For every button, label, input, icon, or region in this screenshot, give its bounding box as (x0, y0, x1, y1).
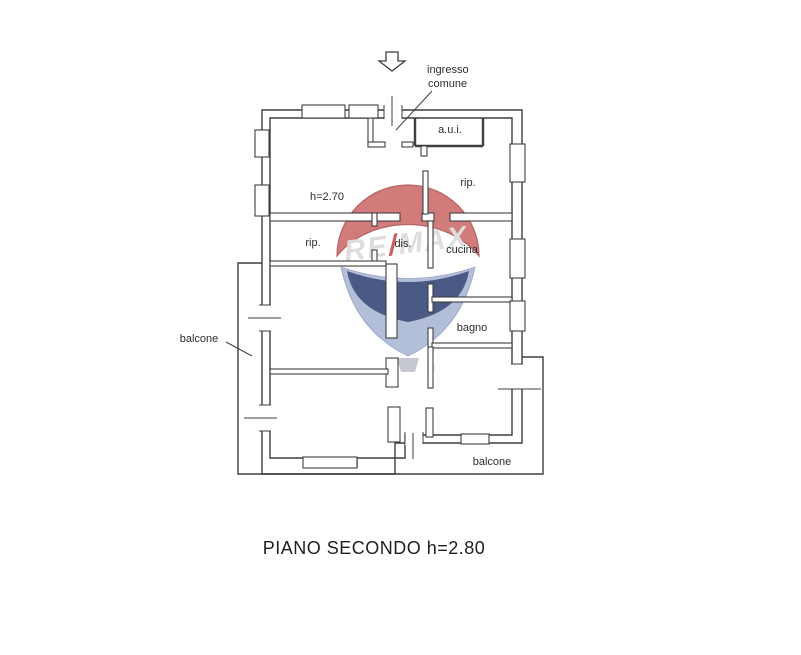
balcony-door-opening-bottom (405, 431, 423, 445)
balcone-leader-line (226, 342, 252, 356)
interior-wall (270, 261, 386, 266)
interior-wall-thick (386, 264, 397, 338)
floorplan-drawing: ® RE/MAX (0, 0, 801, 655)
interior-wall (388, 407, 400, 442)
window-marker (255, 130, 269, 157)
interior-wall (432, 343, 512, 348)
interior-walls (270, 118, 512, 442)
label-height-note: h=2.70 (310, 191, 344, 203)
window-marker (510, 144, 525, 182)
interior-wall (377, 213, 400, 221)
label-bagno: bagno (457, 322, 488, 334)
label-dis: dis. (394, 238, 411, 250)
north-arrow-icon (379, 52, 405, 71)
window-marker (255, 185, 269, 216)
plan-title: PIANO SECONDO h=2.80 (263, 538, 486, 558)
label-rip-top: rip. (460, 177, 475, 189)
interior-wall (450, 213, 512, 221)
window-marker (461, 434, 489, 444)
interior-wall (270, 369, 388, 374)
interior-wall (421, 146, 427, 156)
interior-wall (368, 142, 385, 147)
window-marker (303, 457, 357, 468)
window-marker (510, 239, 525, 278)
interior-wall (428, 221, 433, 268)
interior-wall (432, 297, 512, 302)
interior-wall (402, 142, 413, 147)
label-balcone-left: balcone (180, 333, 219, 345)
interior-wall (426, 408, 433, 437)
window-marker (349, 105, 378, 118)
label-rip-mid: rip. (305, 237, 320, 249)
floorplan-page: ® RE/MAX (0, 0, 801, 655)
balloon-basket-icon (397, 358, 419, 372)
interior-wall (423, 171, 428, 214)
entrance-opening (384, 104, 402, 120)
label-balcone-bottom: balcone (473, 456, 512, 468)
label-aui: a.u.i. (438, 124, 462, 136)
window-marker (510, 301, 525, 331)
interior-wall (372, 213, 377, 226)
balcony-door-opening-right (510, 364, 523, 389)
interior-wall (428, 347, 433, 388)
label-ingresso-line1: ingresso (427, 64, 469, 76)
label-ingresso-line2: comune (428, 78, 467, 90)
interior-wall (270, 213, 372, 221)
window-marker (302, 105, 345, 118)
label-cucina: cucina (446, 244, 479, 256)
